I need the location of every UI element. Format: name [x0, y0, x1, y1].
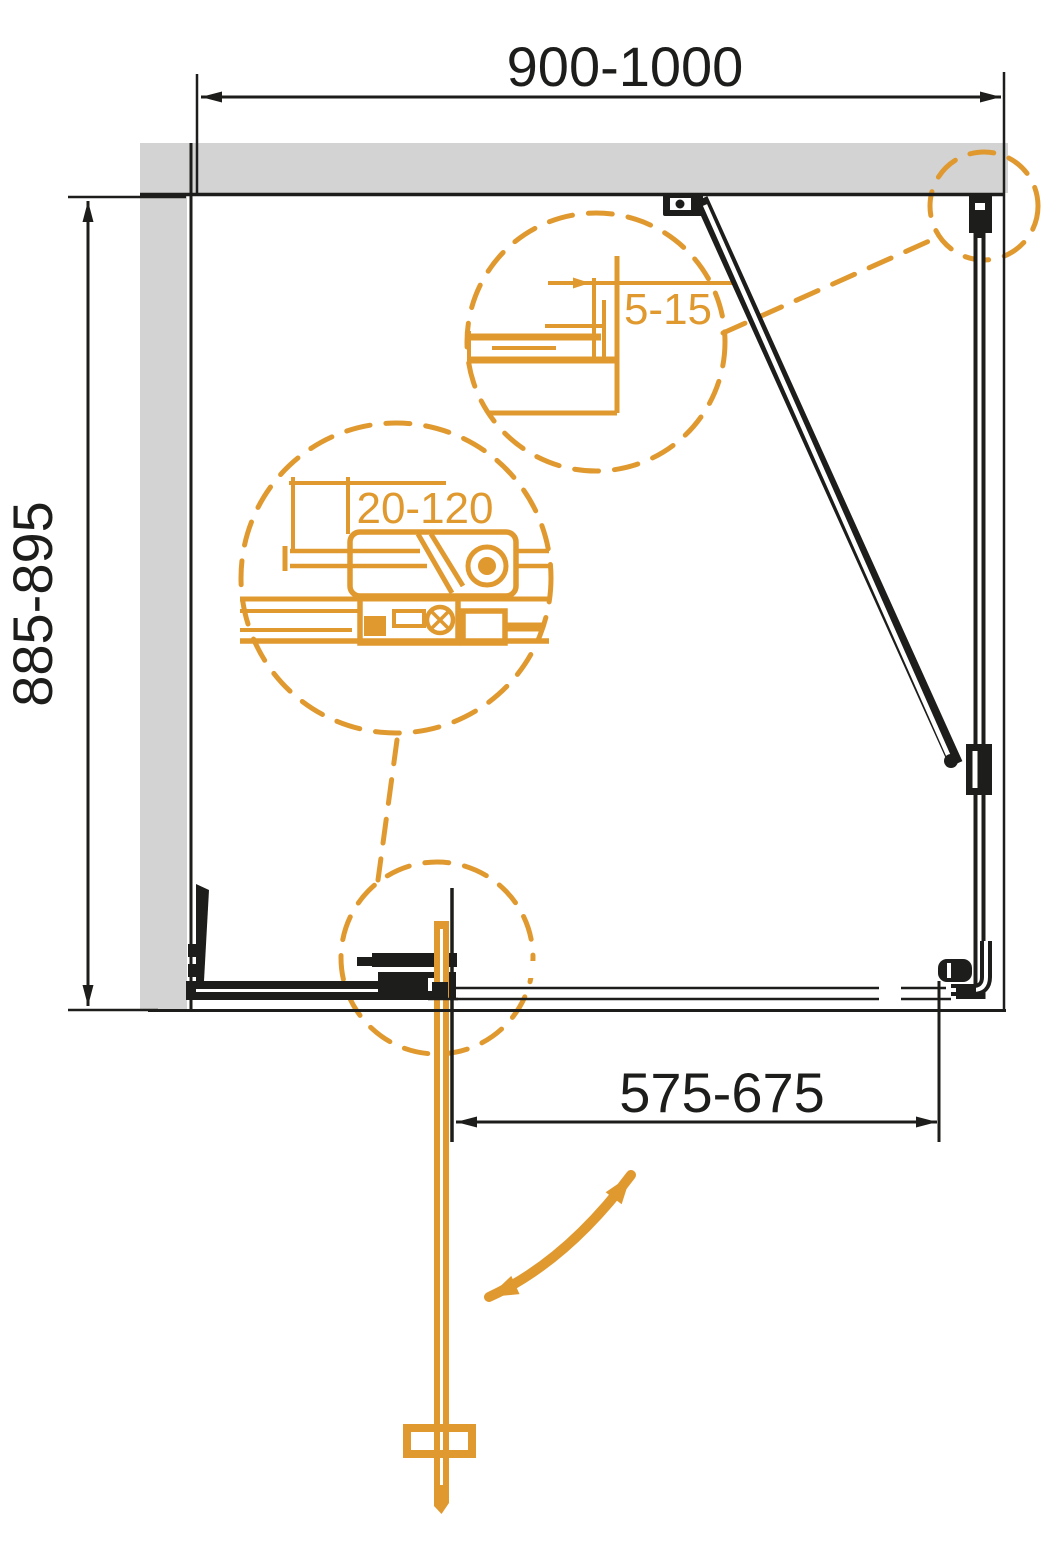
panel-hinge-slit: [973, 751, 978, 788]
detail-callouts: 5-15 20-120: [240, 152, 1038, 1054]
door-glass-core: [705, 205, 949, 757]
panel-hinge-block: [966, 744, 992, 795]
technical-drawing-page: 5-15 20-120: [0, 0, 1063, 1545]
open-door-tip: [434, 1498, 449, 1514]
wall-profile-cap-notch: [975, 203, 985, 210]
drawing-canvas: 5-15 20-120: [0, 0, 1063, 1545]
detail-1-wall-profile: 5-15: [467, 213, 737, 471]
depth-dimension-label: 885-895: [1, 501, 64, 707]
bottom-rail-assembly: [186, 884, 986, 1002]
door-swing-arrow: [489, 1175, 631, 1297]
support-bracket: [879, 938, 901, 1002]
door-dimension-label: 575-675: [619, 1061, 825, 1124]
top-pivot-pin: [676, 200, 685, 209]
wall-profile-cap: [969, 196, 992, 233]
top-wall: [140, 143, 1008, 193]
door-pivot-block: [432, 982, 448, 998]
left-profile-tab-1: [188, 944, 196, 957]
stabilizer-bar: [383, 961, 940, 978]
roller-axle: [478, 557, 496, 575]
leader-line-detail2: [378, 740, 397, 880]
carriage-insert: [394, 611, 424, 626]
door-hinge-knuckle: [944, 754, 958, 768]
detail-1-dim-label: 5-15: [624, 285, 712, 334]
open-door-glass-core: [440, 929, 443, 1485]
guide-block: [463, 611, 505, 643]
left-wall: [140, 143, 187, 1011]
left-profile-tab-2: [188, 964, 196, 977]
carriage-block: [364, 616, 386, 636]
width-dimension-label: 900-1000: [507, 35, 744, 98]
corner-foot: [956, 985, 976, 999]
detail-2-extension-profile: 20-120: [240, 423, 551, 733]
fixed-glass-panel: [966, 196, 992, 999]
bar-end-connector-slit: [947, 963, 951, 978]
detail-2-dim-label: 20-120: [356, 484, 493, 533]
detail-1-dim-arrow: [573, 278, 590, 289]
carriage-step: [357, 957, 373, 966]
bar-end-connector: [938, 959, 972, 982]
